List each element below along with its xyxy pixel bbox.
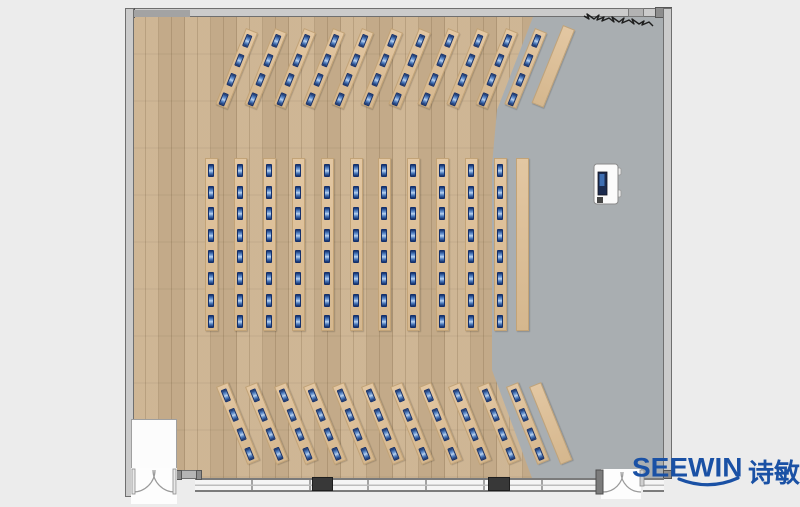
seat-monitor-icon — [237, 272, 243, 285]
seat-monitor-icon — [439, 250, 445, 263]
seat-monitor-icon — [295, 186, 301, 199]
seat-monitor-icon — [410, 164, 416, 177]
seat-monitor-icon — [468, 207, 474, 220]
seat-monitor-icon — [439, 164, 445, 177]
seat-monitor-icon — [389, 447, 399, 461]
seat-monitor-icon — [234, 53, 244, 67]
seat-monitor-icon — [266, 207, 272, 220]
seat-monitor-icon — [313, 73, 323, 87]
seat-monitor-icon — [237, 250, 243, 263]
seat-monitor-icon — [381, 164, 387, 177]
seat-monitor-icon — [408, 53, 418, 67]
seat-monitor-icon — [432, 408, 442, 422]
seat-monitor-icon — [497, 250, 503, 263]
seat-monitor-icon — [329, 34, 339, 48]
seat-monitor-icon — [476, 447, 486, 461]
seat-monitor-icon — [418, 447, 428, 461]
seat-monitor-icon — [457, 73, 467, 87]
seat-monitor-icon — [324, 229, 330, 242]
seat-monitor-icon — [353, 294, 359, 307]
seat-monitor-icon — [494, 53, 504, 67]
seat-monitor-icon — [208, 272, 214, 285]
seat-monitor-icon — [266, 164, 272, 177]
seat-monitor-icon — [208, 164, 214, 177]
seat-monitor-icon — [208, 229, 214, 242]
desk-row-center — [494, 158, 507, 331]
desk-row-center — [234, 158, 247, 331]
seat-monitor-icon — [237, 294, 243, 307]
seat-monitor-icon — [381, 272, 387, 285]
seat-monitor-icon — [497, 294, 503, 307]
seat-monitor-icon — [295, 250, 301, 263]
seat-monitor-icon — [403, 408, 413, 422]
seat-monitor-icon — [453, 388, 463, 402]
seat-monitor-icon — [321, 53, 331, 67]
seat-monitor-icon — [461, 408, 471, 422]
seat-monitor-icon — [421, 92, 431, 106]
seat-monitor-icon — [294, 427, 304, 441]
seat-monitor-icon — [266, 186, 272, 199]
seat-monitor-icon — [371, 73, 381, 87]
seat-monitor-icon — [242, 34, 252, 48]
seat-monitor-icon — [439, 294, 445, 307]
seat-monitor-icon — [381, 250, 387, 263]
seat-monitor-icon — [276, 92, 286, 106]
seat-monitor-icon — [265, 427, 275, 441]
seat-monitor-icon — [410, 250, 416, 263]
seat-monitor-icon — [295, 229, 301, 242]
seat-monitor-icon — [271, 34, 281, 48]
logo-swoosh-icon — [676, 476, 742, 490]
seat-monitor-icon — [353, 207, 359, 220]
seat-monitor-icon — [324, 250, 330, 263]
seat-monitor-icon — [273, 447, 283, 461]
seat-monitor-icon — [486, 73, 496, 87]
seat-monitor-icon — [287, 408, 297, 422]
seat-monitor-icon — [439, 427, 449, 441]
seat-monitor-icon — [479, 92, 489, 106]
seat-monitor-icon — [358, 34, 368, 48]
seat-monitor-icon — [410, 427, 420, 441]
seat-monitor-icon — [266, 229, 272, 242]
seat-monitor-icon — [439, 186, 445, 199]
seat-monitor-icon — [439, 272, 445, 285]
seat-monitor-icon — [324, 272, 330, 285]
seat-monitor-icon — [507, 92, 517, 106]
seat-monitor-icon — [497, 315, 503, 328]
seat-monitor-icon — [284, 73, 294, 87]
seat-monitor-icon — [244, 447, 254, 461]
seat-monitor-icon — [468, 272, 474, 285]
seat-monitor-icon — [468, 315, 474, 328]
seat-monitor-icon — [447, 447, 457, 461]
seat-monitor-icon — [334, 92, 344, 106]
desk-row-center — [350, 158, 363, 331]
seat-monitor-icon — [497, 164, 503, 177]
seat-monitor-icon — [324, 294, 330, 307]
seat-monitor-icon — [497, 186, 503, 199]
seat-monitor-icon — [324, 207, 330, 220]
seat-monitor-icon — [468, 164, 474, 177]
seat-monitor-icon — [305, 92, 315, 106]
seat-monitor-icon — [526, 427, 536, 441]
seat-monitor-icon — [450, 92, 460, 106]
seat-monitor-icon — [295, 315, 301, 328]
desk-row-center — [378, 158, 391, 331]
desk-row-center — [465, 158, 478, 331]
seat-monitor-icon — [208, 250, 214, 263]
seat-monitor-icon — [226, 73, 236, 87]
seat-monitor-icon — [295, 294, 301, 307]
seat-monitor-icon — [363, 92, 373, 106]
seat-monitor-icon — [295, 207, 301, 220]
seat-monitor-icon — [345, 408, 355, 422]
seat-monitor-icon — [229, 408, 239, 422]
seat-monitor-icon — [395, 388, 405, 402]
seat-monitor-icon — [502, 34, 512, 48]
seat-monitor-icon — [292, 53, 302, 67]
seat-monitor-icon — [237, 164, 243, 177]
seat-monitor-icon — [497, 427, 507, 441]
seat-monitor-icon — [436, 53, 446, 67]
seat-monitor-icon — [410, 315, 416, 328]
seat-monitor-icon — [353, 250, 359, 263]
logo-cjk-text: 诗敏 — [748, 453, 800, 490]
seat-monitor-icon — [497, 229, 503, 242]
seat-monitor-icon — [392, 92, 402, 106]
seat-monitor-icon — [337, 388, 347, 402]
desk-blocks — [0, 0, 800, 507]
desk-row-center — [263, 158, 276, 331]
seat-monitor-icon — [415, 34, 425, 48]
seat-monitor-icon — [381, 207, 387, 220]
seat-monitor-icon — [266, 250, 272, 263]
seat-monitor-icon — [534, 447, 544, 461]
floor-plan-canvas: SEEWIN 诗敏 — [0, 0, 800, 507]
seat-monitor-icon — [381, 427, 391, 441]
seat-monitor-icon — [353, 272, 359, 285]
seat-monitor-icon — [439, 229, 445, 242]
seat-monitor-icon — [266, 294, 272, 307]
seat-monitor-icon — [473, 34, 483, 48]
seat-monitor-icon — [316, 408, 326, 422]
seat-monitor-icon — [353, 315, 359, 328]
desk-row-center — [436, 158, 449, 331]
seat-monitor-icon — [236, 427, 246, 441]
seat-monitor-icon — [439, 315, 445, 328]
seat-monitor-icon — [468, 250, 474, 263]
seat-monitor-icon — [324, 315, 330, 328]
seat-monitor-icon — [218, 92, 228, 106]
seat-monitor-icon — [208, 294, 214, 307]
seat-monitor-icon — [352, 427, 362, 441]
seat-monitor-icon — [208, 186, 214, 199]
seat-monitor-icon — [400, 73, 410, 87]
seat-monitor-icon — [323, 427, 333, 441]
seat-monitor-icon — [279, 388, 289, 402]
seat-monitor-icon — [302, 447, 312, 461]
seat-monitor-icon — [511, 388, 521, 402]
seat-monitor-icon — [424, 388, 434, 402]
seewin-logo: SEEWIN 诗敏 — [628, 448, 800, 504]
seat-monitor-icon — [465, 53, 475, 67]
seat-monitor-icon — [523, 53, 533, 67]
seat-monitor-icon — [429, 73, 439, 87]
seat-monitor-icon — [266, 315, 272, 328]
seat-monitor-icon — [482, 388, 492, 402]
seat-monitor-icon — [531, 34, 541, 48]
seat-monitor-icon — [324, 186, 330, 199]
seat-monitor-icon — [308, 388, 318, 402]
seat-monitor-icon — [444, 34, 454, 48]
seat-monitor-icon — [515, 73, 525, 87]
seat-monitor-icon — [258, 408, 268, 422]
seat-monitor-icon — [295, 272, 301, 285]
desk-row-center — [321, 158, 334, 331]
seat-monitor-icon — [350, 53, 360, 67]
seat-monitor-icon — [381, 229, 387, 242]
desk-row-center — [292, 158, 305, 331]
seat-monitor-icon — [381, 186, 387, 199]
seat-monitor-icon — [379, 53, 389, 67]
seat-monitor-icon — [366, 388, 376, 402]
seat-monitor-icon — [208, 207, 214, 220]
seat-monitor-icon — [360, 447, 370, 461]
seat-monitor-icon — [255, 73, 265, 87]
seat-monitor-icon — [221, 388, 231, 402]
seat-monitor-icon — [237, 315, 243, 328]
seat-monitor-icon — [490, 408, 500, 422]
seat-monitor-icon — [468, 294, 474, 307]
seat-monitor-icon — [410, 294, 416, 307]
seat-monitor-icon — [410, 272, 416, 285]
seat-monitor-icon — [342, 73, 352, 87]
seat-monitor-icon — [410, 229, 416, 242]
seat-monitor-icon — [387, 34, 397, 48]
seat-monitor-icon — [324, 164, 330, 177]
seat-monitor-icon — [237, 186, 243, 199]
seat-monitor-icon — [410, 207, 416, 220]
seat-monitor-icon — [208, 315, 214, 328]
seat-monitor-icon — [263, 53, 273, 67]
seat-monitor-icon — [353, 164, 359, 177]
seat-monitor-icon — [353, 229, 359, 242]
seat-monitor-icon — [237, 229, 243, 242]
seat-monitor-icon — [381, 294, 387, 307]
seat-monitor-icon — [237, 207, 243, 220]
seat-monitor-icon — [266, 272, 272, 285]
desk-row-center — [407, 158, 420, 331]
seat-monitor-icon — [439, 207, 445, 220]
seat-monitor-icon — [300, 34, 310, 48]
seat-monitor-icon — [295, 164, 301, 177]
seat-monitor-icon — [468, 229, 474, 242]
seat-monitor-icon — [497, 207, 503, 220]
seat-monitor-icon — [353, 186, 359, 199]
side-table-center — [516, 158, 529, 331]
seat-monitor-icon — [468, 427, 478, 441]
seat-monitor-icon — [381, 315, 387, 328]
seat-monitor-icon — [468, 186, 474, 199]
seat-monitor-icon — [374, 408, 384, 422]
seat-monitor-icon — [410, 186, 416, 199]
seat-monitor-icon — [331, 447, 341, 461]
seat-monitor-icon — [519, 408, 529, 422]
seat-monitor-icon — [505, 447, 515, 461]
seat-monitor-icon — [250, 388, 260, 402]
seat-monitor-icon — [247, 92, 257, 106]
seat-monitor-icon — [497, 272, 503, 285]
desk-row-center — [205, 158, 218, 331]
